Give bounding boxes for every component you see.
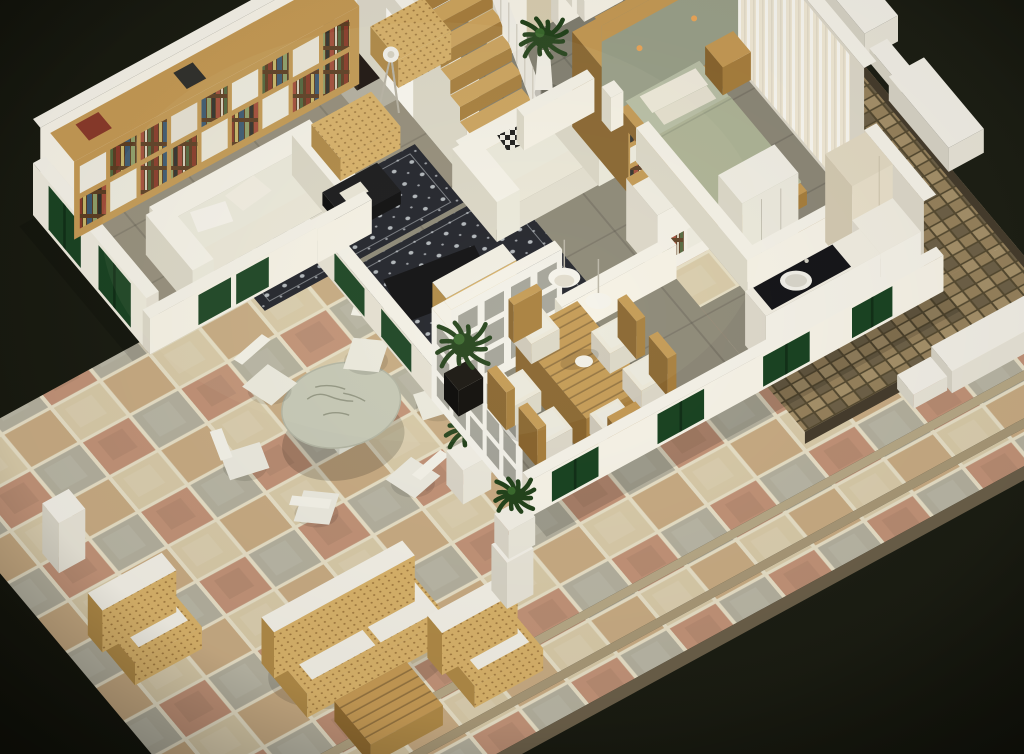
ambience — [0, 0, 1024, 754]
floor-plan-3d-render — [0, 0, 1024, 754]
floor-plan-scene — [0, 0, 1024, 754]
